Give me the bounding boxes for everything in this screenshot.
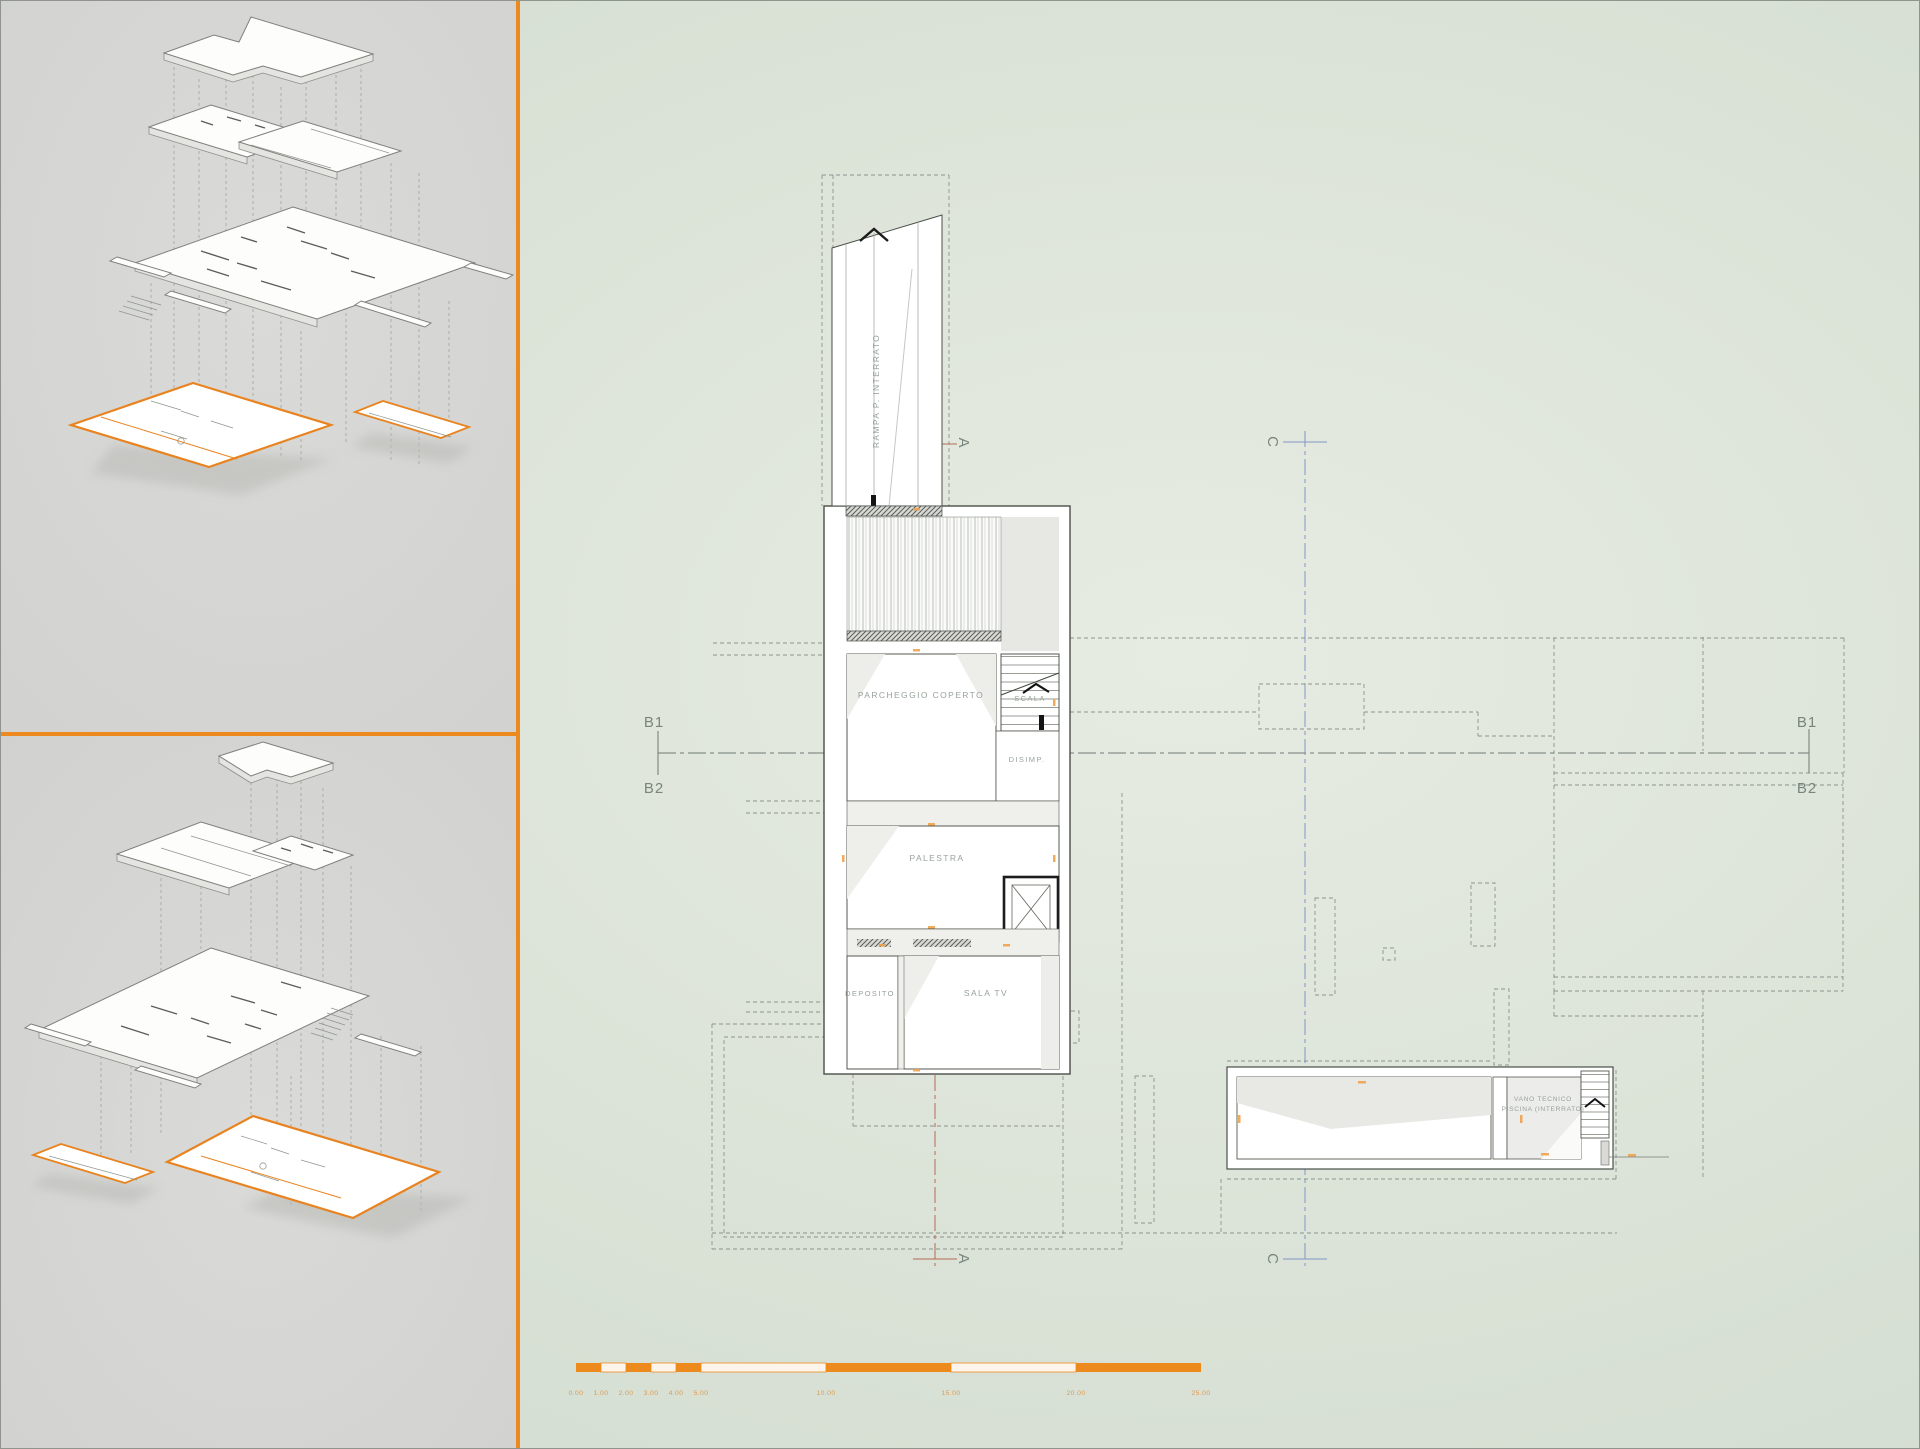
scale-label-1: 1.00 [594,1390,609,1397]
section-marker-c-top: C [1264,436,1281,448]
scale-label-25: 25.00 [1191,1390,1210,1397]
section-marker-b1-right: B1 [1797,714,1817,731]
scale-label-15: 15.00 [941,1390,960,1397]
label-scala: SCALA [1014,694,1046,703]
basement-floor-plan: RAMPA P. INTERRATO PARCHEGGIO COPERTO SC… [520,1,1920,1449]
section-marker-c-bottom: C [1264,1253,1281,1265]
terrace-shadow-area [1001,517,1059,651]
label-parcheggio: PARCHEGGIO COPERTO [858,690,984,700]
wall-band-2 [847,929,1059,956]
scale-label-10: 10.00 [816,1390,835,1397]
section-marker-b1-left: B1 [644,714,664,731]
section-marker-b2-left: B2 [644,780,664,797]
room-parcheggio [847,654,996,801]
panel-top-bg [1,1,520,732]
section-marker-a-top: A [955,437,972,448]
scale-label-0: 0.00 [569,1390,584,1397]
exploded-axo-bottom [1,736,520,1449]
grating-strip [847,631,1001,641]
ramp [832,215,942,516]
pool-ladder [1601,1141,1609,1165]
architectural-sheet: RAMPA P. INTERRATO PARCHEGGIO COPERTO SC… [0,0,1920,1449]
wall-band-1 [847,801,1059,826]
stair-scala [1001,654,1059,731]
scale-label-5: 5.00 [694,1390,709,1397]
basement-building [824,215,1070,1074]
scale-label-4: 4.00 [669,1390,684,1397]
room-deposito [847,956,898,1069]
pool-stair [1581,1071,1609,1138]
label-rampa: RAMPA P. INTERRATO [871,334,881,448]
section-marker-a-bottom: A [955,1253,972,1264]
section-marker-b2-right: B2 [1797,780,1817,797]
room-palestra [847,826,1059,941]
room-disimp [996,731,1059,801]
scale-bar: 0.00 1.00 2.00 3.00 4.00 5.00 10.00 15.0… [569,1363,1211,1397]
scale-label-20: 20.00 [1066,1390,1085,1397]
exploded-axonometric-panels [1,1,520,1449]
label-vano-tecnico-2: PISCINA (INTERRATO) [1501,1106,1584,1113]
pool-tech-room [1507,1077,1581,1159]
scale-label-3: 3.00 [644,1390,659,1397]
label-disimp: DISIMP. [1009,755,1046,764]
panel-orange-divider [1,732,516,736]
label-vano-tecnico-1: VANO TECNICO [1514,1096,1572,1103]
label-deposito: DEPOSITO [845,989,895,998]
scale-label-2: 2.00 [619,1390,634,1397]
exploded-axo-top [1,1,520,732]
partition-wall [898,956,904,1069]
pergola-stripes [847,517,1001,631]
room-sala-tv [904,956,1059,1069]
pool-basin [1237,1077,1491,1159]
label-palestra: PALESTRA [910,853,965,863]
ramp-grating [846,506,942,516]
pool-structure [1227,1067,1669,1169]
label-sala-tv: SALA TV [964,988,1008,998]
pool-separator [1493,1077,1507,1159]
